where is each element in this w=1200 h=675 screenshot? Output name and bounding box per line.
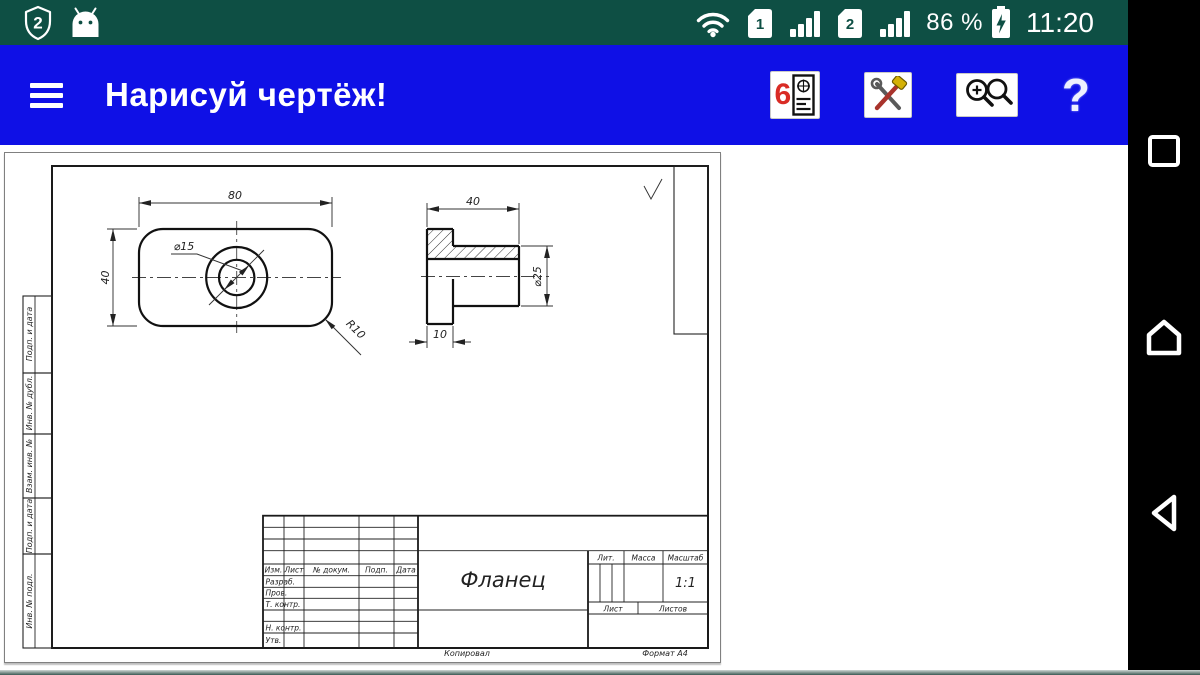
- tb-row-razrab: Разраб.: [266, 578, 295, 587]
- tb-col-masshtab: Масштаб: [668, 554, 704, 563]
- mini-drawing-icon: [792, 74, 815, 116]
- side-view: 40 ⌀25 10: [409, 195, 553, 348]
- help-button[interactable]: ?: [1062, 72, 1090, 118]
- tb-col-list: Лист: [283, 566, 304, 575]
- shield-notification-icon: 2: [21, 5, 55, 41]
- tb-col-podp: Подп.: [365, 566, 388, 575]
- margin-col-label: Подп. и дата: [25, 307, 34, 362]
- footer-copied: Копировал: [444, 649, 490, 658]
- wifi-icon: [695, 7, 731, 38]
- menu-icon[interactable]: [30, 78, 63, 113]
- dim-boss-diameter: ⌀25: [531, 266, 544, 287]
- part-name: Фланец: [460, 568, 545, 592]
- tb-col-massa: Масса: [632, 554, 656, 563]
- tb-col-sheet: Лист: [602, 605, 623, 614]
- status-left-cluster: 2: [0, 5, 102, 41]
- screen: 2 1: [0, 0, 1200, 675]
- app-bar: Нарисуй чертёж! 6: [0, 45, 1128, 145]
- sim1-number: 1: [756, 16, 764, 33]
- sim2-number: 2: [846, 16, 854, 33]
- tb-col-data: Дата: [395, 566, 416, 575]
- scale-value: 1:1: [675, 576, 696, 591]
- margin-col-label: Инв. № дубл.: [25, 376, 34, 431]
- drawing-sheet: Подп. и дата Инв. № дубл. Взам. инв. № П…: [4, 152, 721, 663]
- sim2-icon: 2: [836, 7, 864, 39]
- tb-col-sheets: Листов: [658, 605, 687, 614]
- dim-side-length: 40: [466, 195, 480, 208]
- signal-bars-2-icon: [879, 7, 911, 38]
- title-block: Изм. Лист № докум. Подп. Дата Разраб. Пр…: [263, 516, 708, 648]
- battery-charging-icon: [991, 6, 1011, 39]
- status-right-cluster: 1 2 86 %: [695, 6, 1128, 39]
- dim-top-height: 40: [99, 271, 112, 285]
- roughness-mark: [644, 179, 662, 199]
- recents-button[interactable]: [1146, 133, 1182, 169]
- battery-percent: 86 %: [926, 9, 983, 37]
- dim-top-width: 80: [228, 189, 242, 202]
- clock: 11:20: [1026, 7, 1094, 39]
- dim-hole-diameter: ⌀15: [174, 240, 195, 253]
- margin-columns: Подп. и дата Инв. № дубл. Взам. инв. № П…: [23, 296, 52, 648]
- footer-format: Формат А4: [642, 649, 688, 658]
- margin-col-label: Взам. инв. №: [25, 439, 34, 493]
- tools-button[interactable]: [864, 72, 912, 118]
- tools-icon: [868, 76, 908, 114]
- margin-col-label: Подп. и дата: [25, 499, 34, 554]
- dim-plate-thickness: 10: [433, 328, 447, 341]
- top-view: 80 40 ⌀15 R10: [99, 189, 368, 355]
- tb-row-tkontr: Т. контр.: [266, 600, 301, 609]
- tb-row-nkontr: Н. контр.: [266, 624, 302, 633]
- sim1-icon: 1: [746, 7, 774, 39]
- tb-col-doc: № докум.: [312, 566, 350, 575]
- tb-col-izm: Изм.: [265, 566, 283, 575]
- drawing-canvas[interactable]: Подп. и дата Инв. № дубл. Взам. инв. № П…: [5, 153, 720, 662]
- zoom-icon: [959, 76, 1015, 114]
- android-head-icon: [69, 7, 102, 38]
- content-area: Подп. и дата Инв. № дубл. Взам. инв. № П…: [0, 145, 1128, 675]
- zoom-button[interactable]: [956, 73, 1018, 117]
- task-number-label: 6: [775, 80, 792, 110]
- status-bar: 2 1: [0, 0, 1128, 45]
- nav-bar: [1128, 0, 1200, 675]
- signal-bars-1-icon: [789, 7, 821, 38]
- app-bar-actions: 6: [770, 71, 1128, 119]
- dim-corner-radius: R10: [343, 317, 367, 341]
- page-title: Нарисуй чертёж!: [105, 76, 387, 114]
- home-button[interactable]: [1143, 316, 1185, 358]
- tb-row-prov: Пров.: [266, 589, 288, 598]
- margin-col-label: Инв. № подл.: [25, 573, 34, 628]
- tb-col-lit: Лит.: [596, 554, 614, 563]
- tb-row-utv: Утв.: [266, 636, 282, 645]
- task-number-button[interactable]: 6: [770, 71, 820, 119]
- back-button[interactable]: [1145, 491, 1183, 535]
- shield-badge-count: 2: [33, 13, 42, 32]
- screen-bottom-edge: [0, 670, 1200, 675]
